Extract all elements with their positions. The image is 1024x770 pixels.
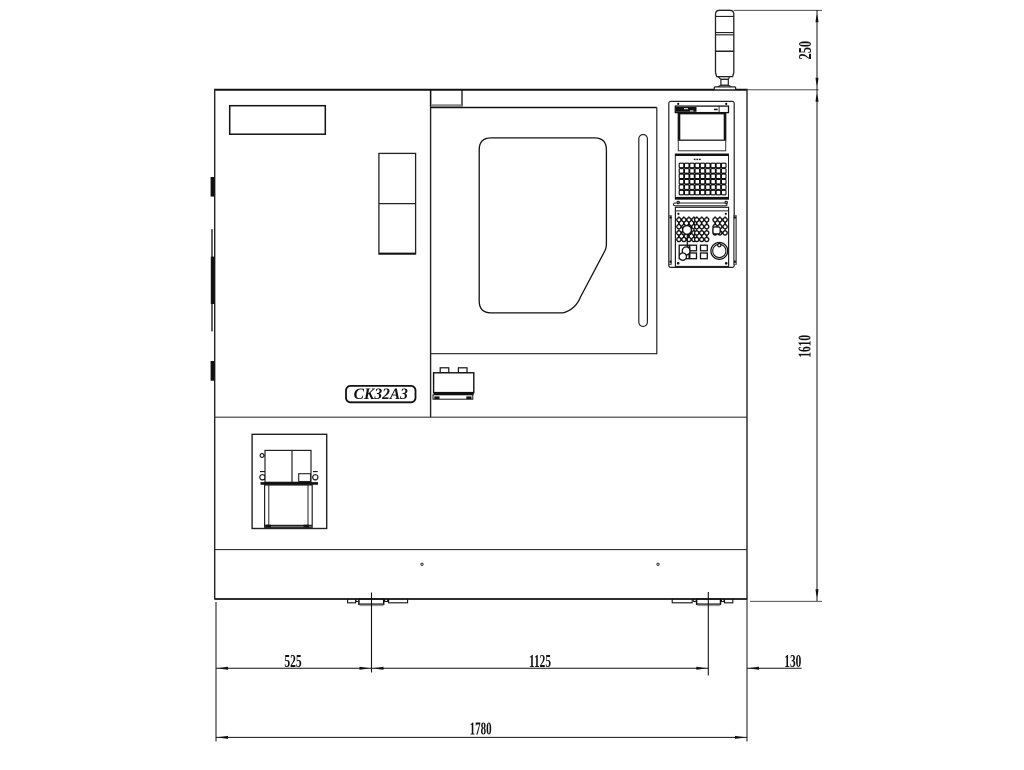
svg-text:1125: 1125 [529,651,551,671]
svg-text:130: 130 [784,651,801,671]
svg-text:CK32A3: CK32A3 [354,386,409,403]
svg-text:1780: 1780 [470,719,492,739]
svg-text:1610: 1610 [795,335,815,358]
svg-text:525: 525 [284,651,301,671]
svg-text:250: 250 [795,41,815,60]
